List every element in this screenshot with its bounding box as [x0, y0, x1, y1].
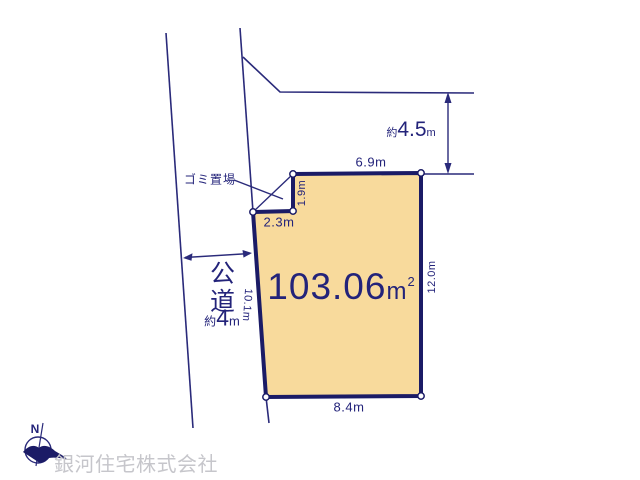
setback-unit: m [427, 127, 436, 139]
company-watermark: 銀河住宅株式会社 [54, 448, 218, 477]
compass-north-label: N [31, 422, 40, 436]
dimension-top: 6.9m [356, 155, 387, 170]
road-left-boundary-line [166, 33, 193, 428]
neighbor-boundary-line [243, 57, 474, 93]
corner-marker-icon [290, 171, 296, 177]
setback-arrowhead-down-icon [445, 163, 452, 174]
garbage-label-leader-line [234, 180, 283, 199]
road-width-label: 約4m [204, 305, 240, 332]
road-width-arrow-line [185, 254, 250, 258]
corner-marker-icon [290, 208, 296, 214]
parcel-area-unit: m [386, 278, 406, 305]
road-width-value: 4 [216, 305, 229, 331]
parcel-area-value: 103.06 [267, 266, 386, 307]
corner-marker-icon [418, 393, 424, 399]
road-width-arrowhead-right-icon [243, 250, 253, 258]
garbage-area-diagonal-line [253, 174, 293, 212]
dimension-notch-height: 1.9m [296, 180, 308, 206]
setback-prefix: 約 [386, 127, 397, 139]
corner-marker-icon [263, 394, 269, 400]
setback-value: 4.5 [397, 118, 426, 141]
road-width-arrowhead-left-icon [183, 253, 193, 261]
corner-marker-icon [250, 209, 256, 215]
garbage-spot-label: ゴミ置場 [184, 171, 236, 188]
corner-marker-icon [418, 170, 424, 176]
dimension-left: 10.1m [240, 288, 254, 322]
plot-diagram: ゴミ置場 1.9m 2.3m 6.9m 約4.5m 12.0m 10.1m 公道… [0, 0, 640, 480]
dimension-bottom: 8.4m [334, 400, 365, 415]
dimension-right: 12.0m [426, 260, 438, 293]
parcel-area-label: 103.06m2 [267, 266, 414, 308]
road-width-prefix: 約 [204, 315, 216, 329]
parcel-area-superscript: 2 [407, 274, 415, 289]
diagram-lines-layer [0, 0, 640, 480]
dimension-notch-width: 2.3m [264, 215, 295, 230]
setback-dimension-label: 約4.5m [386, 118, 435, 142]
road-width-unit: m [229, 314, 240, 329]
